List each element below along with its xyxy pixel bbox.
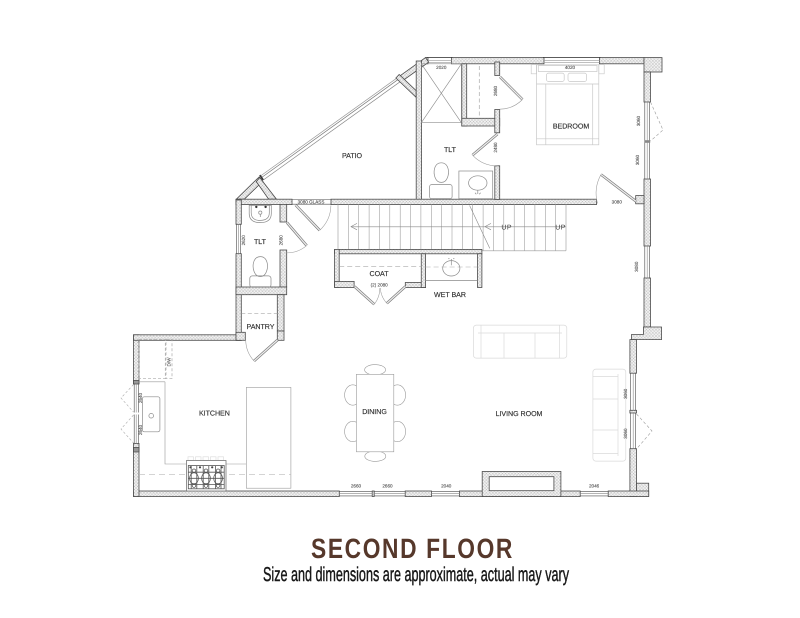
svg-text:3060: 3060 [623, 388, 628, 399]
svg-text:TLT: TLT [254, 238, 267, 246]
svg-text:TLT: TLT [444, 146, 457, 154]
svg-text:2640: 2640 [138, 424, 143, 435]
svg-text:SECOND FLOOR: SECOND FLOOR [311, 533, 514, 564]
svg-text:COAT: COAT [369, 270, 389, 278]
svg-text:2620: 2620 [241, 235, 246, 246]
svg-text:2640: 2640 [138, 392, 143, 403]
svg-text:3060: 3060 [635, 154, 640, 165]
svg-text:BEDROOM: BEDROOM [553, 123, 590, 131]
svg-text:2040: 2040 [441, 484, 452, 489]
svg-text:2020: 2020 [436, 65, 447, 70]
svg-text:2046: 2046 [589, 484, 600, 489]
svg-text:UP: UP [501, 224, 512, 231]
svg-text:3060: 3060 [636, 115, 641, 126]
svg-text:Size and dimensions are approx: Size and dimensions are approximate, act… [263, 564, 569, 586]
svg-text:LIVING ROOM: LIVING ROOM [496, 410, 543, 418]
svg-text:WET BAR: WET BAR [434, 291, 466, 299]
svg-text:3080 GLASS: 3080 GLASS [298, 200, 325, 205]
svg-text:2660: 2660 [351, 483, 362, 488]
svg-text:4020: 4020 [565, 65, 576, 70]
svg-text:2660: 2660 [382, 483, 393, 488]
svg-text:KITCHEN: KITCHEN [199, 410, 230, 418]
svg-text:3060: 3060 [623, 428, 628, 439]
svg-text:D/W: D/W [166, 357, 171, 367]
svg-text:PATIO: PATIO [342, 152, 363, 160]
svg-text:(2) 2080: (2) 2080 [371, 282, 389, 287]
svg-text:UP: UP [555, 224, 566, 231]
svg-text:3080: 3080 [612, 199, 623, 204]
svg-text:PANTRY: PANTRY [247, 323, 275, 331]
svg-text:2480: 2480 [493, 142, 498, 153]
svg-text:DINING: DINING [362, 408, 387, 416]
svg-text:3080: 3080 [634, 261, 639, 272]
svg-text:2680: 2680 [279, 235, 284, 246]
svg-text:2680: 2680 [493, 85, 498, 96]
